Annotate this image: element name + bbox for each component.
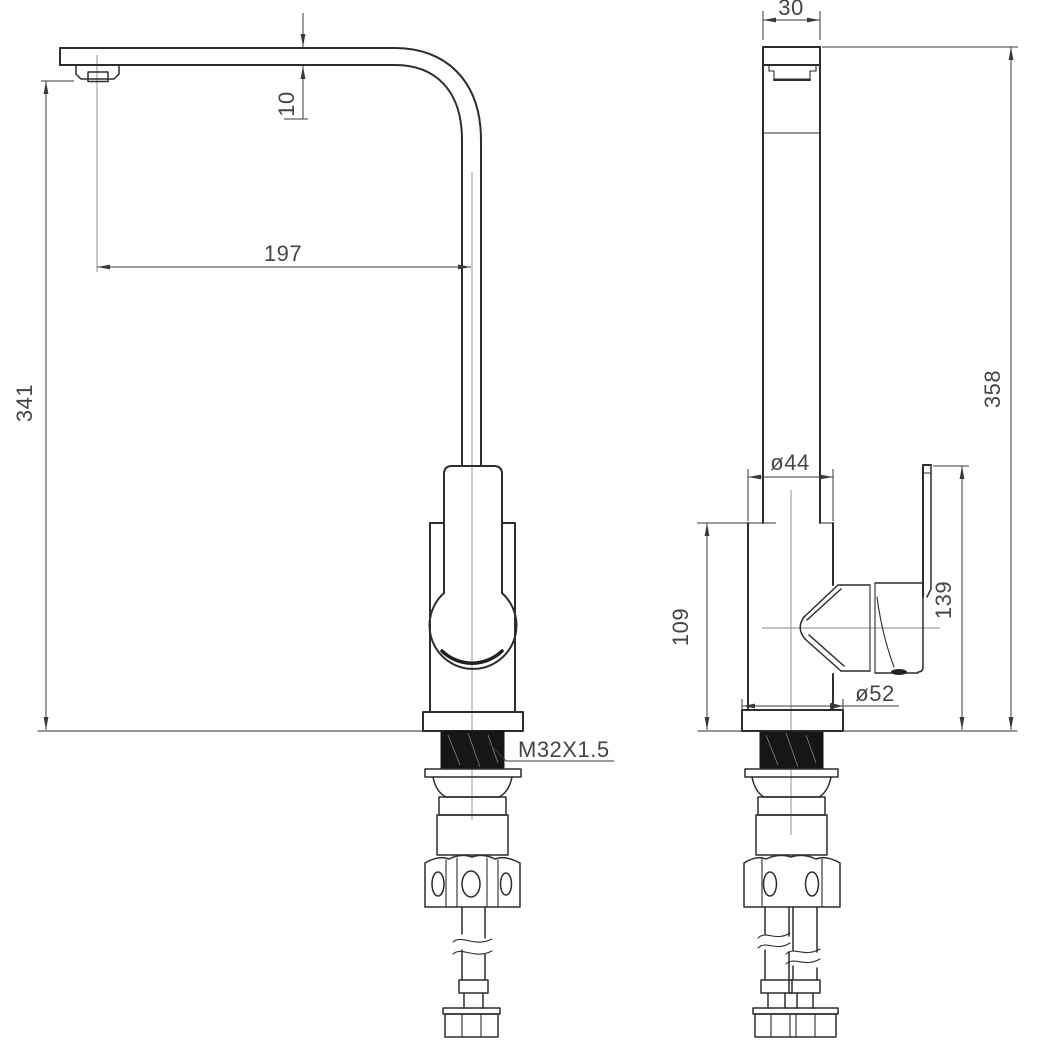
washer	[425, 769, 521, 777]
nut-slot-right	[501, 873, 512, 895]
neck	[444, 466, 502, 593]
body-left	[430, 523, 443, 712]
mounting-nut	[425, 855, 520, 907]
handle-base-contour	[877, 597, 894, 667]
flare-cone	[433, 777, 512, 797]
hose-break-left	[758, 933, 790, 948]
supply-hose-right	[793, 907, 817, 980]
hose-collar-left	[761, 980, 792, 993]
handle-base-right	[918, 597, 923, 672]
mounting-nut-facets	[446, 858, 498, 907]
dimension-label: ø44	[770, 450, 809, 475]
aerator-tip	[88, 72, 108, 82]
handle-lever-blade-edge	[927, 465, 931, 597]
spacer-band	[439, 797, 506, 815]
dimension-label: 139	[931, 581, 956, 619]
ball-joint	[430, 593, 517, 669]
side-view	[698, 47, 1017, 1037]
extension-lines	[742, 699, 843, 710]
handle-set-screw	[891, 669, 907, 675]
mounting-thread-front	[441, 731, 504, 769]
supply-hose-left	[765, 907, 789, 980]
aerator-side-notch	[769, 65, 816, 79]
front-view	[38, 48, 523, 1037]
nut-slot-side-left	[764, 872, 777, 896]
hose-nut-flange	[443, 1008, 500, 1014]
handle-lever-blade	[923, 465, 931, 597]
dim-spout-reach: 197	[97, 241, 471, 267]
bonnet-lower-chamfer	[805, 635, 844, 671]
dim-body-height: 109	[668, 523, 776, 730]
dim-handle-height: 139	[931, 466, 969, 730]
dimension-label: M32X1.5	[518, 737, 610, 762]
spacer-cylinder	[437, 815, 508, 855]
dimension-label: 30	[778, 0, 803, 20]
hose-stubs-side	[768, 993, 813, 1008]
hose-break-symbol	[453, 939, 492, 954]
dimension-label: 109	[668, 608, 693, 646]
drawing-canvas: 30 10 197 341 358 ø4	[0, 0, 1040, 1040]
dim-spout-tube-width: 30	[763, 0, 820, 40]
dimension-label: ø52	[855, 681, 894, 706]
mounting-thread-side	[760, 731, 823, 769]
body-right	[503, 523, 515, 712]
base-flange	[423, 712, 523, 731]
hose-nuts-side-facets	[771, 1014, 815, 1037]
mounting-nut-side	[744, 855, 840, 907]
hose-nut-flange-side	[753, 1008, 838, 1014]
dimension-label: 197	[264, 241, 302, 266]
nut-slot-side-right	[806, 872, 819, 896]
dim-mounting-thread: M32X1.5	[489, 737, 614, 762]
nut-slot-left	[432, 872, 444, 896]
hose-stub	[464, 993, 483, 1008]
bonnet-upper-chamfer	[804, 585, 841, 620]
nut-slot-center	[462, 871, 480, 897]
spout-cap	[763, 47, 820, 65]
arrowhead-right	[830, 703, 843, 709]
hose-collar-right	[789, 980, 820, 993]
hose-break-right	[786, 949, 820, 964]
technical-drawing: 30 10 197 341 358 ø4	[0, 0, 1040, 1040]
dimension-label: 341	[12, 384, 37, 422]
mounting-nut-side-facets	[762, 859, 822, 907]
dimension-label: 358	[980, 370, 1005, 408]
base-flange-side	[742, 710, 843, 731]
spacer-cylinder-side	[756, 815, 827, 855]
washer-side	[745, 769, 838, 777]
spout-inner-edge	[60, 65, 462, 466]
dim-base-diameter: ø52	[742, 681, 899, 710]
supply-hose	[462, 907, 485, 980]
hose-collar	[459, 980, 488, 993]
hose-nut-facets	[462, 1014, 481, 1037]
flare-cone-side	[752, 777, 831, 797]
spacer-band-side	[758, 797, 825, 815]
hose-nut	[445, 1014, 498, 1037]
dim-spout-height: 341	[12, 81, 74, 730]
dimension-label: 10	[274, 91, 299, 116]
